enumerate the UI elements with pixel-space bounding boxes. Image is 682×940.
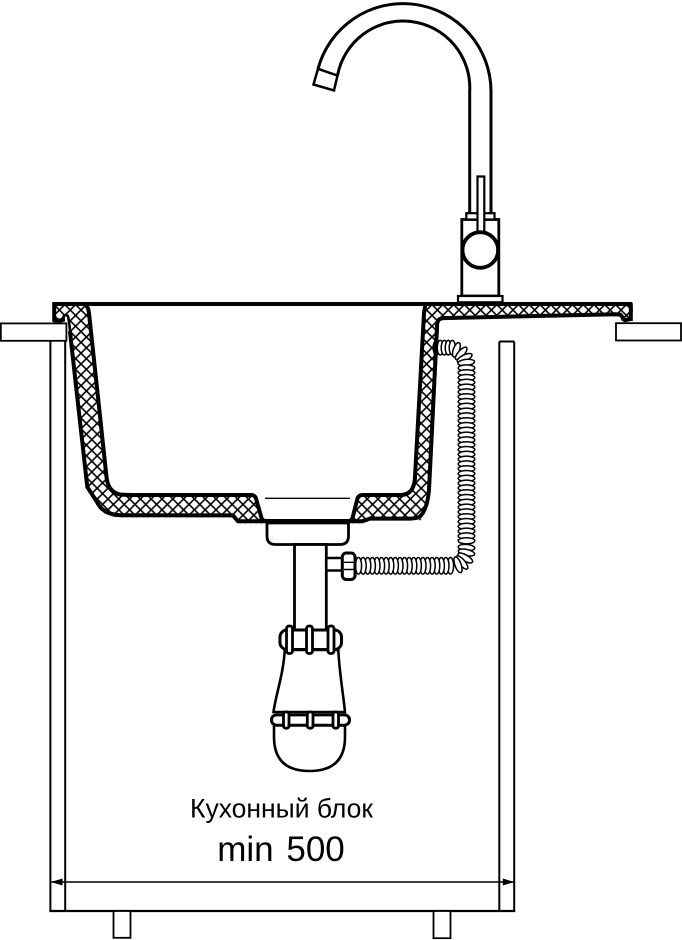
svg-text:Кухонный блок: Кухонный блок bbox=[190, 794, 373, 824]
svg-text:min 500: min 500 bbox=[217, 830, 345, 869]
